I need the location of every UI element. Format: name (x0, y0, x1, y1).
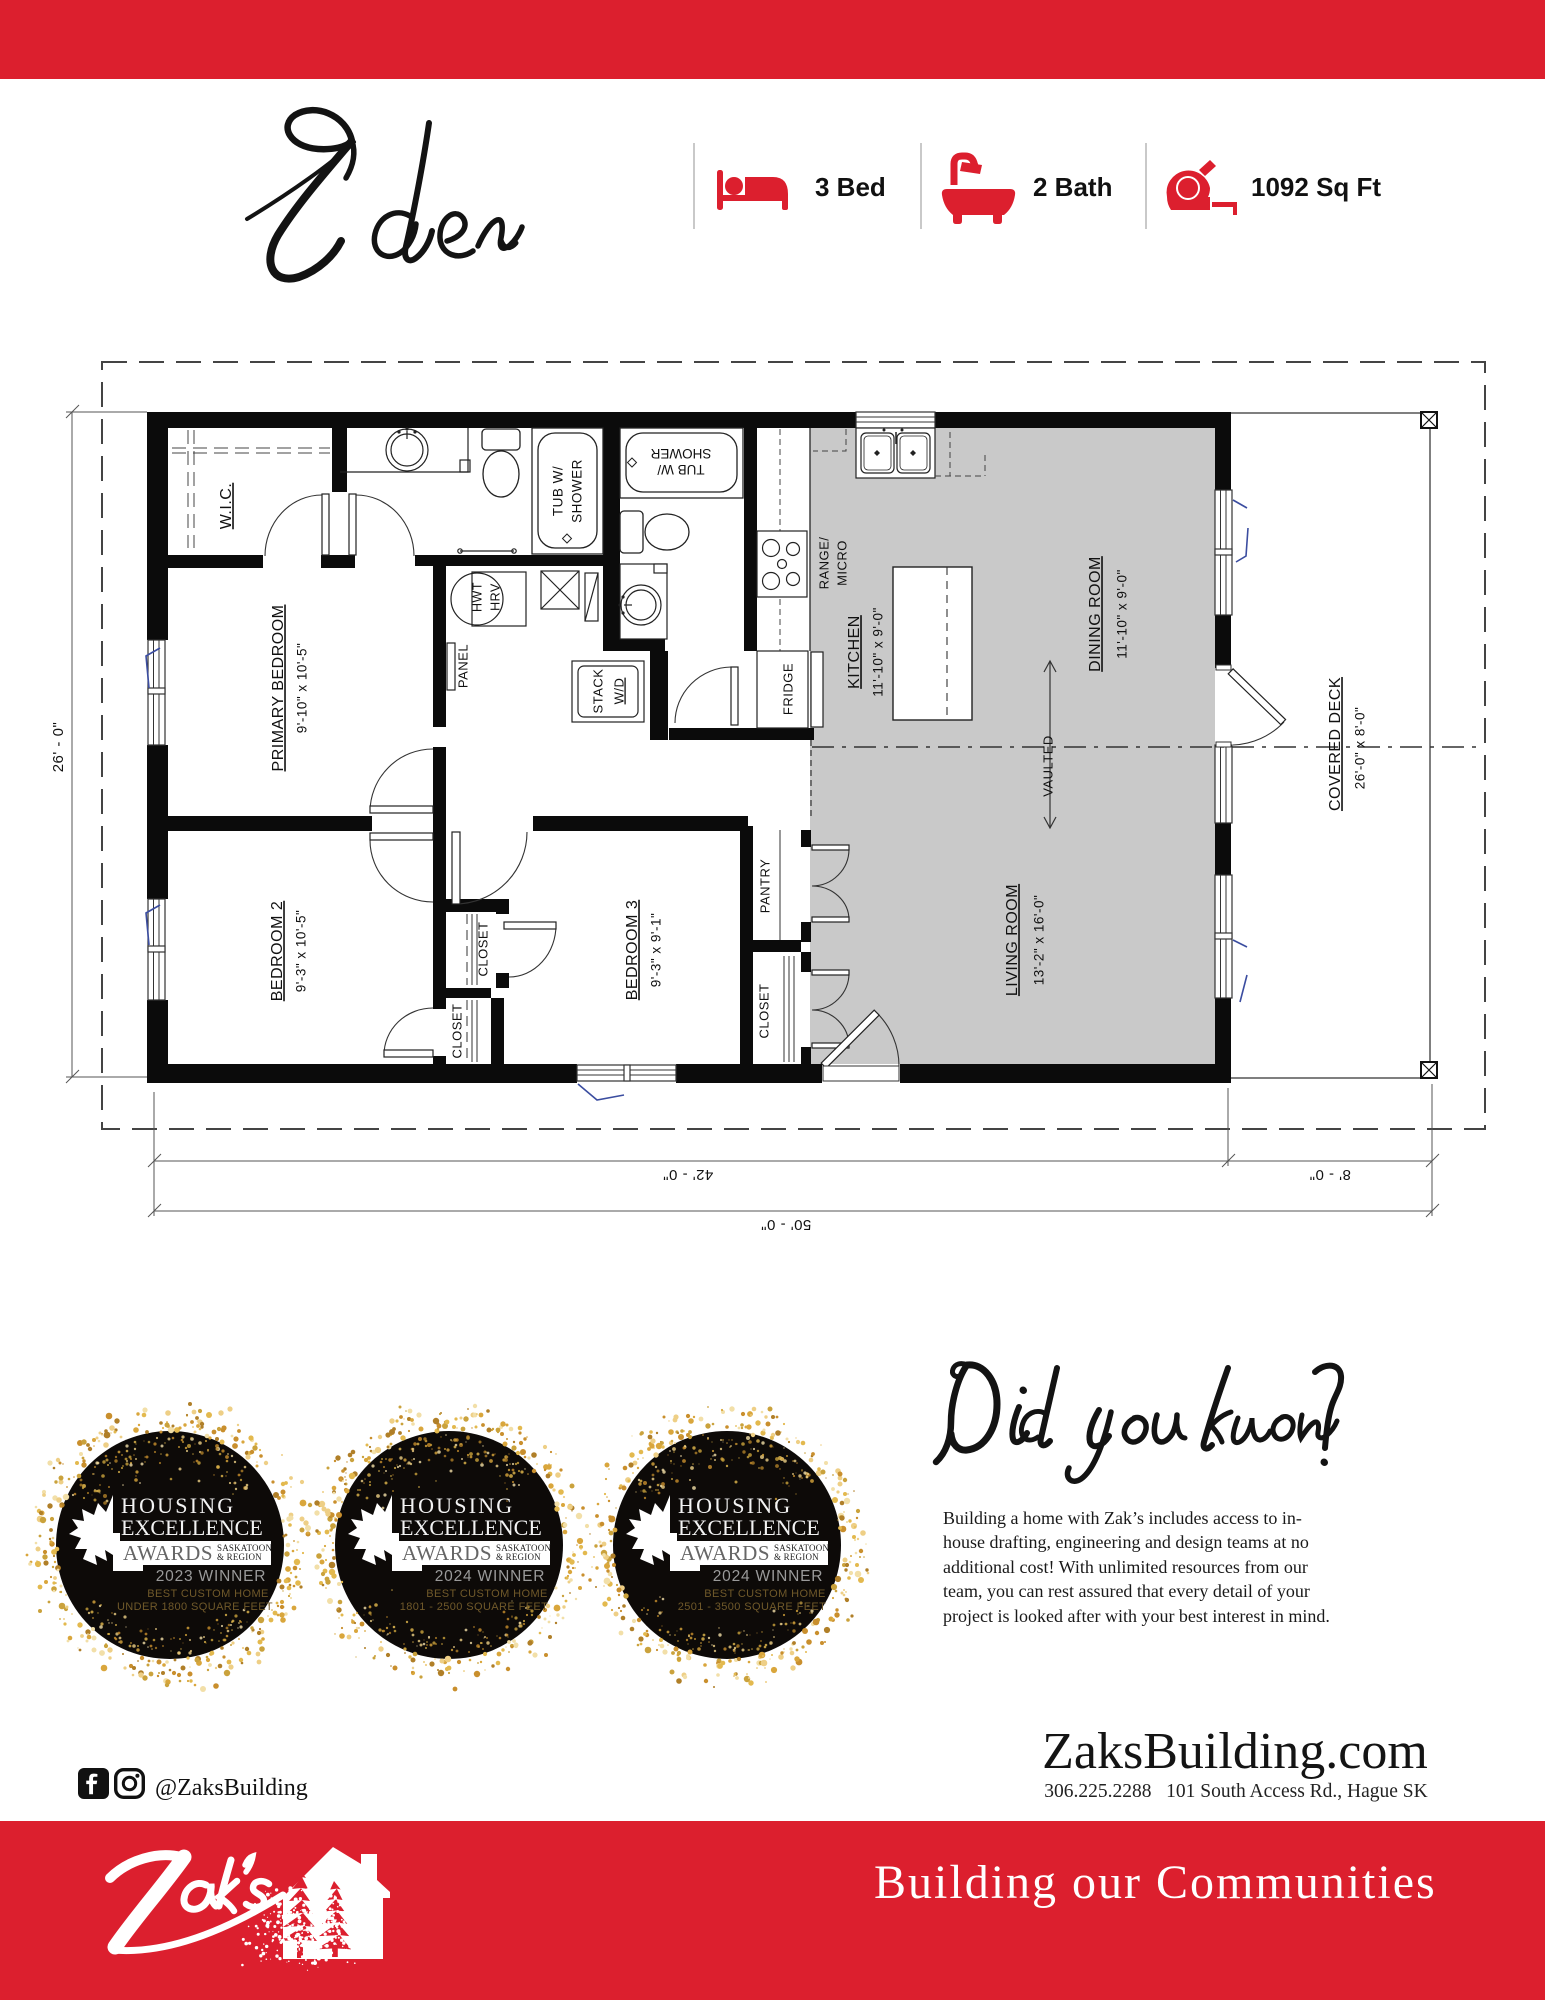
svg-text:DINING ROOM: DINING ROOM (1087, 556, 1104, 672)
svg-text:11'-10" x 9'-0": 11'-10" x 9'-0" (871, 607, 886, 697)
svg-text:W/D: W/D (611, 678, 626, 705)
svg-text:SHOWER: SHOWER (570, 459, 585, 523)
svg-text:11'-10" x 9'-0": 11'-10" x 9'-0" (1115, 569, 1130, 659)
svg-text:8' - 0": 8' - 0" (1309, 1166, 1351, 1183)
svg-text:26'-0" x 8'-0": 26'-0" x 8'-0" (1353, 707, 1368, 790)
svg-text:2024 WINNER: 2024 WINNER (713, 1568, 823, 1585)
svg-text:CLOSET: CLOSET (449, 1003, 464, 1058)
svg-text:VAULTED: VAULTED (1040, 735, 1055, 797)
svg-text:9'-10" x 10'-5": 9'-10" x 10'-5" (295, 643, 310, 734)
svg-text:TUB W/: TUB W/ (657, 462, 704, 477)
svg-text:& REGION: & REGION (496, 1552, 541, 1562)
svg-text:HRV: HRV (488, 583, 502, 611)
svg-text:BEDROOM 2: BEDROOM 2 (269, 901, 286, 1002)
svg-text:AWARDS: AWARDS (402, 1541, 492, 1565)
svg-text:BEDROOM 3: BEDROOM 3 (624, 900, 641, 1001)
svg-text:2501 - 3500 SQUARE FEET: 2501 - 3500 SQUARE FEET (678, 1601, 827, 1613)
svg-text:FRIDGE: FRIDGE (780, 663, 795, 715)
svg-text:2024 WINNER: 2024 WINNER (435, 1568, 545, 1585)
svg-text:PRIMARY BEDROOM: PRIMARY BEDROOM (270, 605, 287, 772)
svg-text:HWT: HWT (470, 582, 484, 612)
svg-text:CLOSET: CLOSET (475, 921, 490, 976)
svg-text:MICRO: MICRO (834, 540, 849, 586)
svg-text:EXCELLENCE: EXCELLENCE (121, 1515, 263, 1540)
svg-text:W.I.C.: W.I.C. (218, 483, 235, 530)
svg-text:UNDER 1800 SQUARE FEET: UNDER 1800 SQUARE FEET (117, 1601, 273, 1613)
svg-text:& REGION: & REGION (774, 1552, 819, 1562)
svg-text:COVERED DECK: COVERED DECK (1327, 677, 1344, 811)
svg-text:2023 WINNER: 2023 WINNER (156, 1568, 266, 1585)
svg-text:& REGION: & REGION (217, 1552, 262, 1562)
svg-text:50' - 0": 50' - 0" (761, 1216, 812, 1233)
svg-text:9'-3" x 10'-5": 9'-3" x 10'-5" (294, 910, 309, 993)
svg-text:EXCELLENCE: EXCELLENCE (400, 1515, 542, 1540)
svg-text:EXCELLENCE: EXCELLENCE (678, 1515, 820, 1540)
svg-text:PANTRY: PANTRY (757, 859, 772, 914)
svg-text:SHOWER: SHOWER (650, 446, 711, 461)
svg-text:BEST CUSTOM HOME: BEST CUSTOM HOME (704, 1588, 826, 1600)
svg-text:9'-3" x 9'-1": 9'-3" x 9'-1" (649, 913, 664, 988)
svg-text:26' - 0": 26' - 0" (50, 722, 67, 773)
svg-text:PANEL: PANEL (455, 644, 470, 688)
svg-text:KITCHEN: KITCHEN (846, 615, 863, 689)
svg-text:CLOSET: CLOSET (756, 983, 771, 1038)
svg-text:BEST CUSTOM HOME: BEST CUSTOM HOME (147, 1588, 269, 1600)
svg-text:1801 - 2500 SQUARE FEET: 1801 - 2500 SQUARE FEET (400, 1601, 549, 1613)
svg-text:STACK: STACK (590, 669, 605, 714)
svg-text:BEST CUSTOM HOME: BEST CUSTOM HOME (426, 1588, 548, 1600)
svg-text:RANGE/: RANGE/ (816, 537, 831, 590)
svg-text:AWARDS: AWARDS (680, 1541, 770, 1565)
svg-text:AWARDS: AWARDS (123, 1541, 213, 1565)
svg-text:42' - 0": 42' - 0" (663, 1166, 714, 1183)
svg-text:TUB W/: TUB W/ (551, 466, 566, 516)
svg-text:LIVING ROOM: LIVING ROOM (1004, 884, 1021, 996)
svg-text:13'-2" x 16'-0": 13'-2" x 16'-0" (1032, 895, 1047, 986)
